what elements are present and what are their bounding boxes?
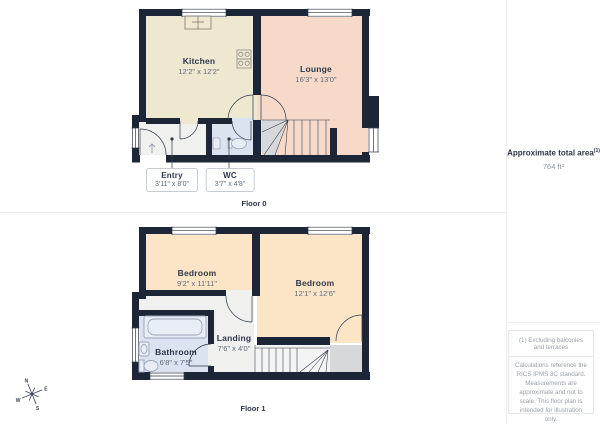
wc-sink-icon [213, 138, 220, 149]
floor1-label: Floor 1 [240, 404, 265, 413]
footnote-box: (1) Excluding balconies and terraces [508, 330, 594, 357]
entry-side-window [132, 128, 140, 148]
landing-name: Landing [217, 333, 251, 343]
bathroom-label: Bathroom 6'8" x 7'5" [155, 347, 197, 367]
bedroom-left-name: Bedroom [177, 268, 217, 278]
floor0-label: Floor 0 [241, 199, 266, 208]
lounge-side-window [368, 128, 379, 152]
bathtub-icon [144, 316, 206, 338]
wc-dims: 3'7" x 4'8" [215, 181, 246, 188]
bedroom-right-name: Bedroom [294, 278, 335, 288]
total-area-footnote-marker: (1) [594, 148, 600, 154]
lounge-dims: 16'3" x 13'0" [295, 75, 336, 84]
stairwell-area [254, 345, 330, 372]
landing-dims: 7'6" x 4'0" [217, 344, 251, 353]
floor0-plan [128, 6, 380, 172]
compass-north-label: N [25, 379, 29, 385]
section-divider-horizontal [0, 212, 506, 213]
compass-west-label: W [16, 398, 21, 404]
kitchen-dims: 12'2" x 12'2" [178, 67, 219, 76]
floorplan-page: Kitchen 12'2" x 12'2" Lounge 16'3" x 13'… [0, 0, 600, 424]
compass-star [18, 380, 47, 409]
footnote-text: (1) Excluding balconies and terraces [514, 337, 588, 351]
bathroom-dims: 6'8" x 7'5" [155, 358, 197, 367]
kitchen-name: Kitchen [178, 56, 219, 66]
total-area-label-text: Approximate total area [507, 149, 594, 158]
entry-name: Entry [155, 171, 189, 180]
compass-east-label: E [44, 387, 48, 393]
sidebar: Approximate total area(1) 764 ft² (1) Ex… [506, 0, 600, 424]
lounge-label: Lounge 16'3" x 13'0" [295, 64, 336, 84]
kitchen-label: Kitchen 12'2" x 12'2" [178, 56, 219, 76]
bedroom-right-label: Bedroom 12'1" x 12'6" [294, 278, 335, 298]
disclaimer-text: Calculations reference the RICS IPMS 3C … [515, 362, 587, 424]
stair-void-gray [330, 345, 362, 372]
lounge-top-window [308, 9, 352, 18]
compass-south-label: S [36, 406, 40, 412]
entry-callout: Entry 3'11" x 8'0" [146, 168, 198, 192]
bathroom-sink-icon [139, 342, 149, 356]
bedroom-left-window [172, 227, 216, 236]
landing-label: Landing 7'6" x 4'0" [217, 333, 251, 353]
bathroom-side-window [132, 328, 140, 362]
compass-icon: N E S W [11, 373, 53, 415]
wc-callout: WC 3'7" x 4'8" [206, 168, 255, 192]
total-area-block: Approximate total area(1) 764 ft² [507, 148, 600, 171]
bedroom-right-window [308, 227, 352, 236]
total-area-title: Approximate total area(1) [507, 148, 600, 158]
disclaimer-box: Calculations reference the RICS IPMS 3C … [508, 356, 594, 414]
bedroom-left-dims: 9'2" x 11'11" [177, 279, 217, 288]
bathroom-bottom-window [150, 372, 184, 380]
wc-toilet-icon [228, 138, 247, 148]
entry-dims: 3'11" x 8'0" [155, 181, 189, 188]
wc-name: WC [215, 171, 246, 180]
lounge-name: Lounge [295, 64, 336, 74]
bathroom-name: Bathroom [155, 347, 197, 357]
bedroom-left-label: Bedroom 9'2" x 11'11" [177, 268, 217, 288]
total-area-value: 764 ft² [507, 162, 600, 171]
bedroom-right-dims: 12'1" x 12'6" [294, 289, 335, 298]
